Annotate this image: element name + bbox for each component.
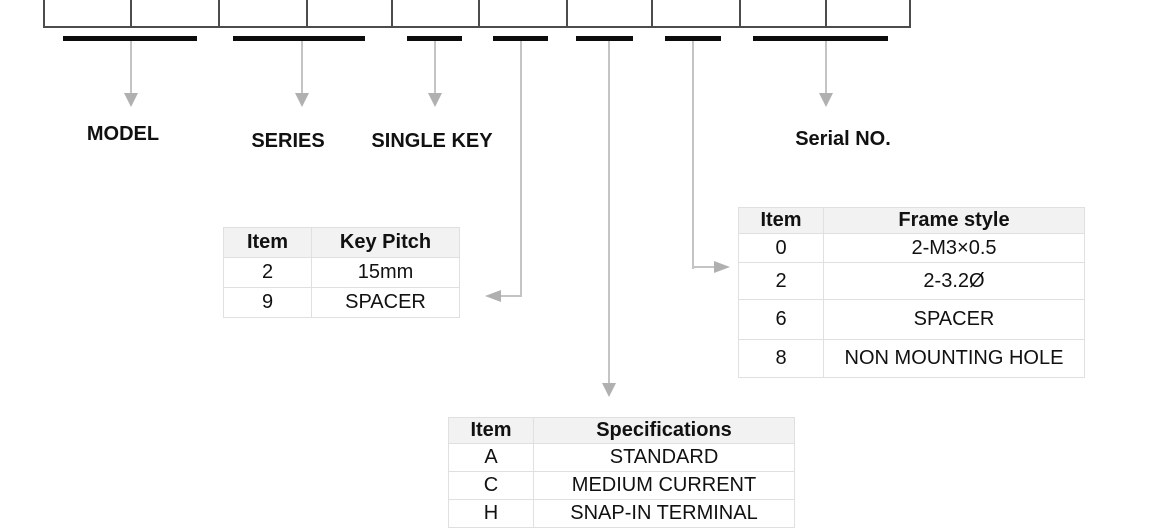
key-pitch-connector-hline (501, 295, 522, 297)
code-cell (43, 0, 130, 26)
series-underline-bar (233, 36, 365, 41)
key-pitch-connector-vline (520, 41, 522, 297)
column-header: Item (739, 208, 824, 234)
item-cell: 0 (739, 234, 824, 263)
value-cell: NON MOUNTING HOLE (824, 340, 1085, 378)
value-cell: MEDIUM CURRENT (534, 472, 795, 500)
part-number-ordering-diagram: MODEL SERIES SINGLE KEY Serial NO. Item … (0, 0, 1150, 532)
key-pitch-arrowhead-icon (485, 290, 501, 302)
part-number-code-boxes (43, 0, 911, 28)
table-row: 0 2-M3×0.5 (739, 234, 1085, 263)
series-arrow-line (301, 41, 303, 93)
code-cell (566, 0, 651, 26)
serial-no-underline-bar (753, 36, 888, 41)
table-row: 8 NON MOUNTING HOLE (739, 340, 1085, 378)
single-key-label: SINGLE KEY (371, 129, 492, 153)
table-header-row: Item Key Pitch (224, 228, 460, 258)
specifications-arrowhead-icon (602, 383, 616, 397)
frame-style-table: Item Frame style 0 2-M3×0.5 2 2-3.2Ø 6 S… (738, 207, 1085, 378)
table-row: 2 15mm (224, 258, 460, 288)
table-row: C MEDIUM CURRENT (449, 472, 795, 500)
series-arrowhead-icon (295, 93, 309, 107)
item-cell: 9 (224, 288, 312, 318)
value-cell: STANDARD (534, 444, 795, 472)
item-cell: 2 (224, 258, 312, 288)
code-cell (825, 0, 911, 26)
frame-style-connector-vline (692, 41, 694, 269)
code-cell (739, 0, 825, 26)
value-cell: 15mm (312, 258, 460, 288)
value-cell: SPACER (824, 300, 1085, 340)
code-cell (218, 0, 306, 26)
frame-style-connector-hline (692, 266, 714, 268)
item-cell: A (449, 444, 534, 472)
key-pitch-table: Item Key Pitch 2 15mm 9 SPACER (223, 227, 460, 318)
value-cell: 2-3.2Ø (824, 263, 1085, 300)
item-cell: 8 (739, 340, 824, 378)
item-cell: H (449, 500, 534, 528)
table-header-row: Item Specifications (449, 418, 795, 444)
code-cell (130, 0, 218, 26)
value-cell: 2-M3×0.5 (824, 234, 1085, 263)
table-row: A STANDARD (449, 444, 795, 472)
frame-style-arrowhead-icon (714, 261, 730, 273)
specifications-table: Item Specifications A STANDARD C MEDIUM … (448, 417, 795, 528)
table-row: 2 2-3.2Ø (739, 263, 1085, 300)
model-arrow-line (130, 41, 132, 93)
item-cell: 6 (739, 300, 824, 340)
model-label: MODEL (87, 122, 159, 146)
table-row: 6 SPACER (739, 300, 1085, 340)
column-header: Specifications (534, 418, 795, 444)
item-cell: 2 (739, 263, 824, 300)
serial-no-arrow-line (825, 41, 827, 93)
specifications-connector-vline (608, 41, 610, 383)
single-key-arrowhead-icon (428, 93, 442, 107)
series-label: SERIES (251, 129, 324, 153)
column-header: Item (224, 228, 312, 258)
column-header: Item (449, 418, 534, 444)
serial-no-arrowhead-icon (819, 93, 833, 107)
code-cell (478, 0, 566, 26)
single-key-arrow-line (434, 41, 436, 93)
code-cell (651, 0, 739, 26)
specifications-underline-bar (576, 36, 633, 41)
model-arrowhead-icon (124, 93, 138, 107)
table-header-row: Item Frame style (739, 208, 1085, 234)
code-cell (306, 0, 391, 26)
table-row: 9 SPACER (224, 288, 460, 318)
code-cell (391, 0, 478, 26)
serial-no-label: Serial NO. (795, 127, 891, 151)
value-cell: SNAP-IN TERMINAL (534, 500, 795, 528)
value-cell: SPACER (312, 288, 460, 318)
column-header: Key Pitch (312, 228, 460, 258)
table-row: H SNAP-IN TERMINAL (449, 500, 795, 528)
column-header: Frame style (824, 208, 1085, 234)
item-cell: C (449, 472, 534, 500)
